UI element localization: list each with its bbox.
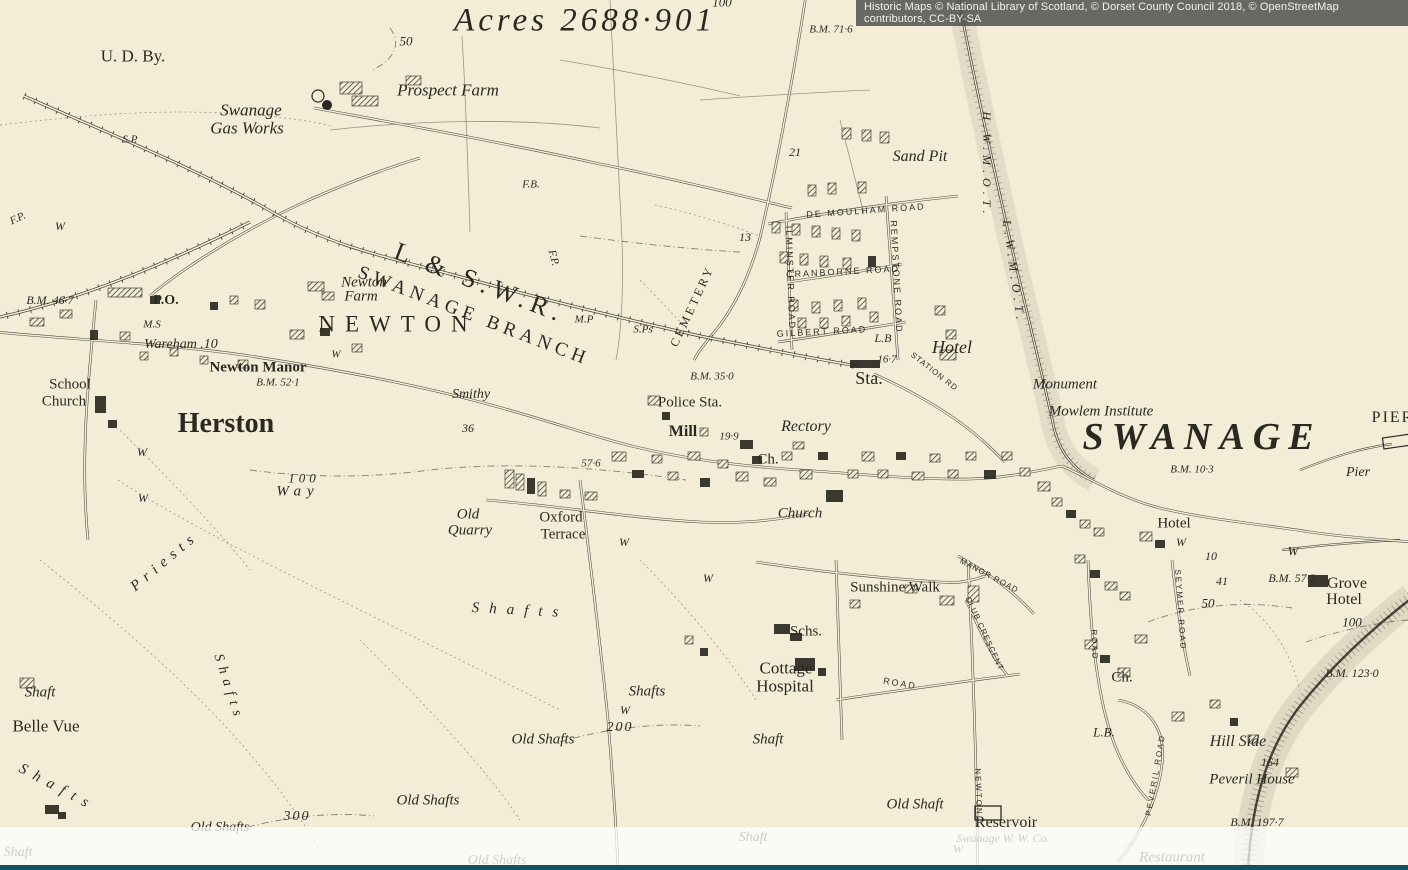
map-label-m-p: M.P — [575, 315, 594, 326]
map-label-s-ps: S.Ps — [633, 325, 652, 336]
map-label-hospital: Hospital — [756, 678, 814, 695]
map-label-shafts: Shafts — [629, 685, 666, 700]
map-label-164: 164 — [1261, 756, 1279, 768]
map-label-w: W — [703, 572, 713, 584]
map-label-newton: NEWTON — [318, 313, 477, 336]
map-label-church: Church — [42, 395, 86, 410]
map-label-de-moulham-road: DE MOULHAM ROAD — [806, 202, 926, 219]
map-label-shaft: Shaft — [753, 733, 784, 748]
map-label-cottage: Cottage — [760, 660, 813, 677]
map-label-way: Way — [276, 485, 319, 500]
map-label-sand-pit: Sand Pit — [893, 149, 948, 165]
map-label-41: 41 — [1216, 575, 1228, 587]
map-label-prospect-farm: Prospect Farm — [397, 82, 499, 99]
map-label-s-p: S.P — [123, 135, 138, 146]
map-label-21: 21 — [789, 146, 801, 158]
map-label-smithy: Smithy — [452, 388, 490, 402]
attribution-text: Historic Maps © National Library of Scot… — [864, 1, 1400, 25]
map-label-w: W — [331, 350, 340, 361]
map-label-13: 13 — [739, 231, 751, 243]
map-label-200: 200 — [607, 721, 634, 735]
map-label-shafts: Shafts — [16, 761, 98, 814]
map-label-quarry: Quarry — [448, 524, 492, 539]
map-label-ch-: Ch. — [1111, 671, 1132, 686]
map-label-w: W — [1288, 545, 1299, 558]
map-label-swanage: Swanage — [220, 102, 281, 119]
map-label-pier: Pier — [1346, 466, 1370, 480]
map-label-50: 50 — [400, 35, 413, 48]
map-label-old: Old — [457, 508, 480, 523]
map-label-peveril-house: Peveril House — [1209, 773, 1294, 788]
map-label-300: 300 — [284, 810, 311, 824]
map-label-w: W — [137, 446, 147, 458]
bottom-fade-overlay — [0, 827, 1408, 870]
map-label-p-o-: P.O. — [153, 294, 178, 308]
map-label-seymer-road: SEYMER ROAD — [1173, 569, 1187, 650]
map-label-station-rd: STATION RD — [909, 351, 959, 393]
map-label-club-crescent: CLUB CRESCENT — [963, 596, 1004, 672]
map-label-l-b-: L.B. — [1093, 726, 1115, 739]
map-label-u-d-by-: U. D. By. — [101, 48, 166, 65]
map-label-shafts: Shafts — [210, 652, 245, 723]
map-label-herston: Herston — [178, 410, 274, 438]
map-label-old-shafts: Old Shafts — [512, 733, 575, 748]
map-label-f-b-: F.B. — [522, 180, 540, 191]
map-label-ch-: Ch. — [757, 453, 778, 468]
map-label-f-p-: F.P. — [546, 249, 561, 267]
map-label-w: W — [55, 220, 65, 232]
map-label-100: 100 — [1342, 616, 1362, 629]
map-label-hotel: Hotel — [1326, 592, 1362, 608]
map-label-h-w-m-o-t-: H.W.M.O.T. — [981, 111, 993, 218]
map-label-19-9: 19·9 — [719, 432, 738, 443]
map-label-newton: NEWTON — [973, 768, 983, 816]
map-label-acres-2688-901: Acres 2688·901 — [454, 5, 716, 38]
map-label-sta-: Sta. — [855, 369, 883, 387]
map-label-belle-vue: Belle Vue — [12, 718, 79, 735]
map-label-16-7: 16·7 — [877, 355, 896, 366]
map-label-shafts: Shafts — [471, 601, 568, 621]
map-label-b-m-52-1: B.M. 52·1 — [256, 378, 299, 389]
map-label-rempstone-road: REMPSTONE ROAD — [889, 220, 904, 334]
map-label-100: 100 — [712, 0, 732, 9]
map-label-road: ROAD — [882, 677, 917, 692]
attribution-bar: Historic Maps © National Library of Scot… — [856, 0, 1408, 26]
map-label-shaft: Shaft — [25, 686, 56, 701]
map-label-manor-road: MANOR ROAD — [958, 557, 1019, 595]
map-label-b-m-10-3: B.M. 10·3 — [1170, 465, 1213, 476]
map-label-b-m-71-6: B.M. 71·6 — [809, 25, 852, 36]
map-label-50: 50 — [1202, 597, 1215, 610]
map-label-farm: Farm — [344, 290, 377, 305]
map-label-old-shafts: Old Shafts — [397, 794, 460, 809]
map-label-road: ROAD — [1089, 629, 1098, 660]
map-label-f-p-: F.P. — [8, 211, 27, 228]
map-label-rectory: Rectory — [781, 419, 831, 435]
map-label-b-m-46-7: B.M. 46·7 — [26, 294, 73, 306]
map-label-cemetery: CEMETERY — [668, 264, 716, 349]
map-label-church: Church — [778, 507, 822, 522]
map-label-36: 36 — [462, 422, 474, 434]
map-label-police-sta-: Police Sta. — [658, 396, 722, 411]
map-label-10: 10 — [1205, 550, 1217, 562]
map-label-b-m-35-0: B.M. 35·0 — [690, 372, 733, 383]
map-labels-layer: Acres 2688·901100B.M. 71·650U. D. By.Pro… — [0, 0, 1408, 870]
map-label-cranborne-road: CRANBORNE ROAD — [786, 265, 900, 280]
map-label-hotel: Hotel — [932, 338, 972, 356]
map-label-sunshine-walk: Sunshine Walk — [850, 581, 940, 596]
map-label-b-m-57-2: B.M. 57·2 — [1268, 572, 1315, 584]
map-label-hill-side: Hill Side — [1210, 734, 1266, 750]
map-label-grove: Grove — [1327, 576, 1367, 592]
map-label-wareham-10: Wareham .10 — [144, 338, 218, 352]
map-label-gas-works: Gas Works — [210, 120, 284, 137]
map-label-schs-: Schs. — [790, 625, 822, 640]
map-label-hotel: Hotel — [1157, 517, 1190, 532]
map-label-swanage: SWANAGE — [1082, 418, 1321, 456]
historic-map-viewport[interactable]: Acres 2688·901100B.M. 71·650U. D. By.Pro… — [0, 0, 1408, 870]
map-label-l-b: L.B — [874, 332, 891, 344]
map-label-w: W — [619, 536, 629, 548]
map-label-57-6: 57·6 — [581, 459, 600, 470]
map-label-school: School — [49, 378, 91, 393]
map-label-priests: Priests — [128, 529, 202, 594]
map-label-ilminster-road: ILMINSTER ROAD — [784, 226, 797, 331]
map-label-newton-manor: Newton Manor — [209, 361, 306, 376]
map-label-w: W — [1176, 536, 1186, 548]
map-label-monument: Monument — [1033, 378, 1097, 393]
map-label-terrace: Terrace — [541, 528, 586, 543]
map-label-m-s: M.S — [143, 320, 160, 331]
map-label-w: W — [620, 704, 630, 716]
map-label-b-m-123-0: B.M. 123·0 — [1325, 667, 1378, 679]
map-label-old-shaft: Old Shaft — [886, 798, 943, 813]
map-label-l-w-m-o-t-: L.W.M.O.T. — [1001, 219, 1027, 325]
map-label-peveril-road: PEVERIL ROAD — [1145, 734, 1167, 817]
map-label-oxford: Oxford — [539, 511, 582, 526]
map-label-mill: Mill — [669, 424, 697, 440]
map-label-pier: PIER — [1372, 410, 1408, 426]
footer-bar — [0, 865, 1408, 870]
map-label-w: W — [138, 492, 148, 504]
